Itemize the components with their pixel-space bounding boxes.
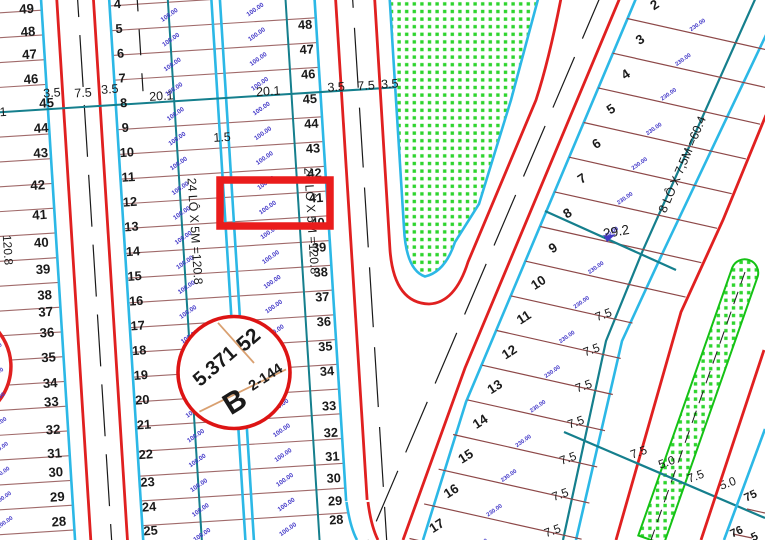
svg-text:32: 32 [323, 425, 338, 441]
svg-text:8: 8 [120, 95, 128, 110]
svg-text:5: 5 [115, 21, 123, 36]
svg-text:20: 20 [135, 392, 150, 408]
svg-text:32: 32 [45, 422, 61, 438]
svg-text:9: 9 [121, 120, 129, 135]
svg-text:11: 11 [121, 169, 135, 185]
svg-text:7.5: 7.5 [357, 78, 375, 93]
svg-text:31: 31 [325, 448, 340, 464]
svg-text:10: 10 [119, 144, 134, 160]
svg-text:29: 29 [50, 489, 66, 505]
svg-text:24: 24 [142, 499, 158, 515]
svg-text:1: 1 [0, 105, 7, 119]
svg-text:21: 21 [136, 416, 151, 432]
svg-text:48: 48 [298, 17, 313, 33]
svg-text:7: 7 [118, 70, 126, 85]
svg-text:3.5: 3.5 [381, 76, 399, 91]
svg-text:14: 14 [125, 243, 141, 259]
svg-text:47: 47 [299, 41, 314, 57]
svg-text:17: 17 [130, 317, 145, 333]
svg-text:12: 12 [122, 194, 137, 210]
svg-text:22: 22 [138, 446, 153, 462]
svg-text:41: 41 [32, 207, 48, 223]
svg-text:3.5: 3.5 [101, 82, 119, 97]
svg-text:25: 25 [143, 522, 158, 538]
svg-text:48: 48 [20, 24, 36, 40]
svg-text:43: 43 [33, 145, 49, 161]
svg-text:36: 36 [39, 325, 55, 341]
svg-text:29: 29 [328, 493, 343, 509]
svg-text:36: 36 [316, 314, 331, 330]
svg-text:28: 28 [51, 514, 67, 530]
svg-text:47: 47 [22, 46, 38, 62]
svg-text:37: 37 [38, 304, 54, 320]
svg-text:49: 49 [19, 1, 35, 17]
svg-text:3.5: 3.5 [327, 80, 345, 95]
svg-text:120.8: 120.8 [0, 235, 16, 266]
svg-text:1.5: 1.5 [213, 130, 231, 145]
svg-text:44: 44 [304, 116, 320, 132]
svg-text:19: 19 [133, 367, 148, 383]
svg-text:35: 35 [41, 349, 57, 365]
svg-text:34: 34 [319, 363, 335, 379]
svg-text:30: 30 [326, 470, 341, 486]
svg-text:15: 15 [127, 268, 142, 284]
svg-text:13: 13 [124, 218, 139, 234]
svg-text:46: 46 [301, 66, 316, 82]
svg-text:37: 37 [315, 289, 330, 305]
svg-text:7.5: 7.5 [74, 85, 92, 100]
svg-text:28: 28 [329, 512, 344, 528]
svg-text:33: 33 [322, 398, 337, 414]
svg-text:16: 16 [129, 293, 144, 309]
svg-text:35: 35 [318, 338, 333, 354]
svg-text:46: 46 [23, 71, 39, 87]
svg-text:40: 40 [34, 235, 50, 251]
svg-text:38: 38 [37, 287, 53, 303]
svg-text:44: 44 [33, 120, 49, 136]
svg-text:34: 34 [42, 375, 58, 391]
svg-text:39: 39 [35, 261, 51, 277]
svg-text:31: 31 [47, 445, 63, 461]
svg-text:30: 30 [48, 464, 64, 480]
svg-text:43: 43 [305, 140, 320, 156]
svg-text:18: 18 [132, 342, 147, 358]
svg-text:6: 6 [117, 45, 125, 60]
svg-text:23: 23 [140, 474, 155, 490]
svg-text:42: 42 [30, 177, 46, 193]
svg-text:45: 45 [39, 95, 55, 111]
svg-text:45: 45 [302, 91, 317, 107]
svg-text:33: 33 [44, 394, 60, 410]
